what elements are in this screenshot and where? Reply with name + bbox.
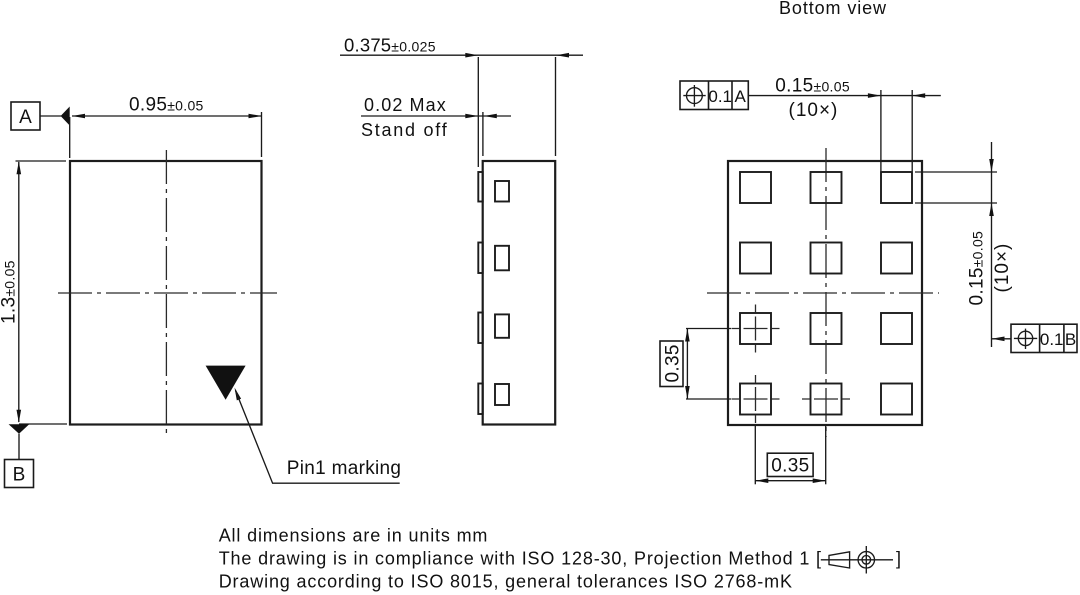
svg-text:0.35: 0.35: [771, 456, 809, 477]
svg-text:0.1: 0.1: [1040, 330, 1064, 349]
svg-text:1.3±0.05: 1.3±0.05: [0, 260, 20, 324]
svg-text:B: B: [1065, 330, 1076, 349]
svg-text:The drawing is in compliance w: The drawing is in compliance with ISO 12…: [219, 549, 822, 569]
svg-text:All dimensions are in units mm: All dimensions are in units mm: [219, 525, 489, 545]
svg-text:]: ]: [896, 549, 901, 569]
svg-text:0.35: 0.35: [663, 344, 684, 382]
svg-text:0.1: 0.1: [708, 87, 732, 106]
svg-text:0.15±0.05: 0.15±0.05: [967, 231, 988, 306]
svg-text:(10×): (10×): [789, 100, 839, 121]
svg-text:A: A: [19, 107, 32, 128]
svg-text:0.15±0.05: 0.15±0.05: [775, 76, 850, 97]
svg-text:Pin1 marking: Pin1 marking: [287, 458, 401, 479]
svg-text:Stand off: Stand off: [361, 120, 448, 140]
svg-text:A: A: [735, 87, 747, 106]
svg-text:0.375±0.025: 0.375±0.025: [344, 35, 436, 56]
svg-text:Drawing according to ISO 8015,: Drawing according to ISO 8015, general t…: [219, 571, 793, 591]
svg-text:B: B: [13, 465, 26, 486]
svg-text:0.95±0.05: 0.95±0.05: [129, 95, 204, 116]
svg-text:0.02 Max: 0.02 Max: [364, 95, 447, 115]
svg-text:(10×): (10×): [992, 243, 1013, 293]
svg-text:Bottom view: Bottom view: [779, 0, 887, 18]
